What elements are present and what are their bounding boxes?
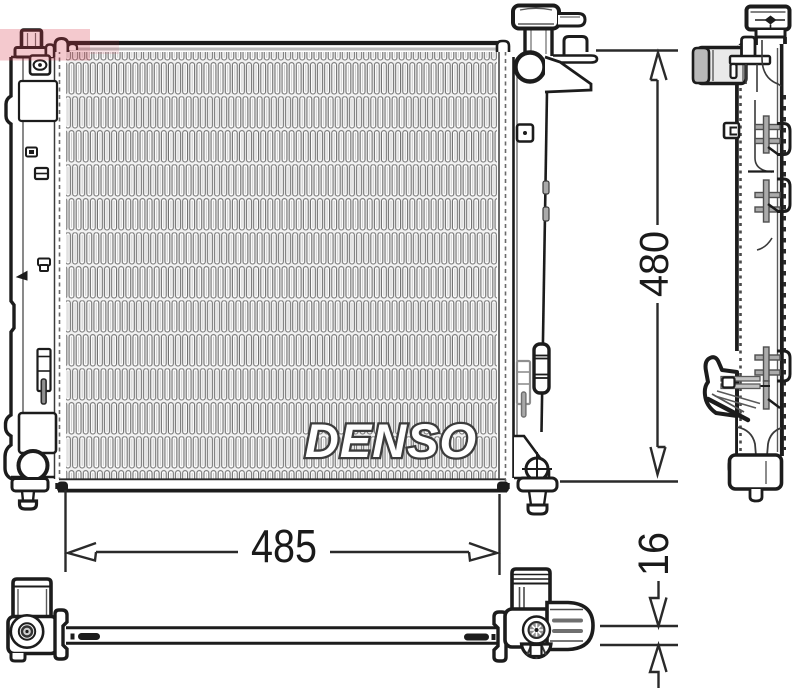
svg-text:DENSO: DENSO — [305, 414, 477, 467]
svg-text:480: 480 — [631, 231, 677, 297]
svg-text:485: 485 — [251, 520, 317, 572]
svg-text:16: 16 — [630, 532, 678, 576]
